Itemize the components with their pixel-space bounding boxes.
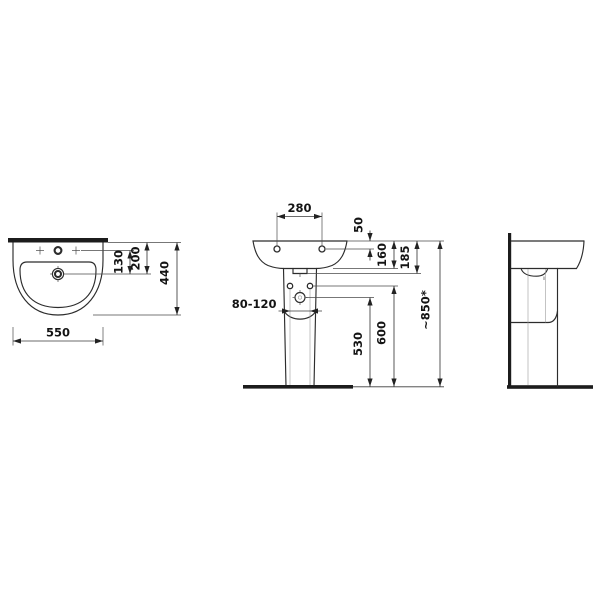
dim-label-basin-depth: 440 (158, 261, 172, 285)
arrowhead (391, 379, 396, 387)
side-view (507, 233, 593, 389)
arrowhead (367, 298, 372, 306)
fixing-hole-left (274, 246, 280, 252)
dim-label-supply-height: 600 (375, 321, 389, 345)
basin-front-outline (253, 241, 347, 269)
arrowhead (391, 241, 396, 249)
dim-label-rim-height: ~850* (419, 290, 433, 330)
wall-edge-bar (8, 238, 108, 243)
overflow-notch (293, 269, 307, 274)
top-view: 550 130 200 440 (8, 238, 181, 346)
wall-line (508, 233, 511, 388)
arrowhead (414, 266, 419, 274)
dim-label-rim-to-siphon: 185 (398, 245, 412, 269)
arrowhead (391, 261, 396, 269)
arrowhead (414, 241, 419, 249)
dim-label-supply-spacing: 80-120 (232, 297, 277, 311)
pedestal-front-contour (285, 312, 316, 319)
arrowhead (144, 243, 149, 251)
arrowhead (367, 379, 372, 387)
drain-outlet-front (293, 290, 308, 305)
arrowhead (277, 214, 285, 219)
arrowhead (144, 266, 149, 274)
dim-label-drain-height: 530 (351, 332, 365, 356)
arrowhead (437, 379, 442, 387)
dim-label-fixing-holes-spacing: 280 (287, 201, 311, 215)
basin-front-curve (577, 241, 585, 269)
arrowhead (13, 338, 21, 343)
dim-label-rim-to-fixing: 50 (352, 217, 366, 233)
pedestal-contour-side (511, 311, 557, 323)
dim-label-tap-to-drain: 130 (112, 250, 126, 274)
arrowhead (95, 338, 103, 343)
supply-connection-right (307, 283, 312, 288)
tap-hole (55, 247, 62, 254)
arrowhead (367, 233, 372, 241)
floor-line (243, 385, 353, 389)
supply-connection-left (287, 283, 292, 288)
siphon-cover-curve (521, 269, 548, 277)
arrowhead (314, 214, 322, 219)
drain-center (298, 296, 301, 299)
arrowhead (367, 249, 372, 257)
arrowhead (310, 308, 318, 313)
arrowhead (282, 308, 290, 313)
washbasin-dimension-drawing: 550 130 200 440 (0, 0, 600, 600)
pedestal-left-edge (284, 269, 287, 387)
floor-line (507, 385, 593, 389)
dim-label-basin-width: 550 (46, 326, 70, 340)
arrowhead (437, 241, 442, 249)
front-view: 280 80-120 50 160 185 530 (232, 201, 444, 389)
drain-inner-ring (55, 271, 61, 277)
drain-circle (295, 293, 305, 303)
arrowhead (174, 243, 179, 251)
fixing-hole-right (319, 246, 325, 252)
arrowhead (391, 286, 396, 294)
dim-label-back-to-drain: 200 (129, 246, 143, 270)
dim-label-rim-to-underside: 160 (375, 243, 389, 267)
arrowhead (174, 307, 179, 315)
